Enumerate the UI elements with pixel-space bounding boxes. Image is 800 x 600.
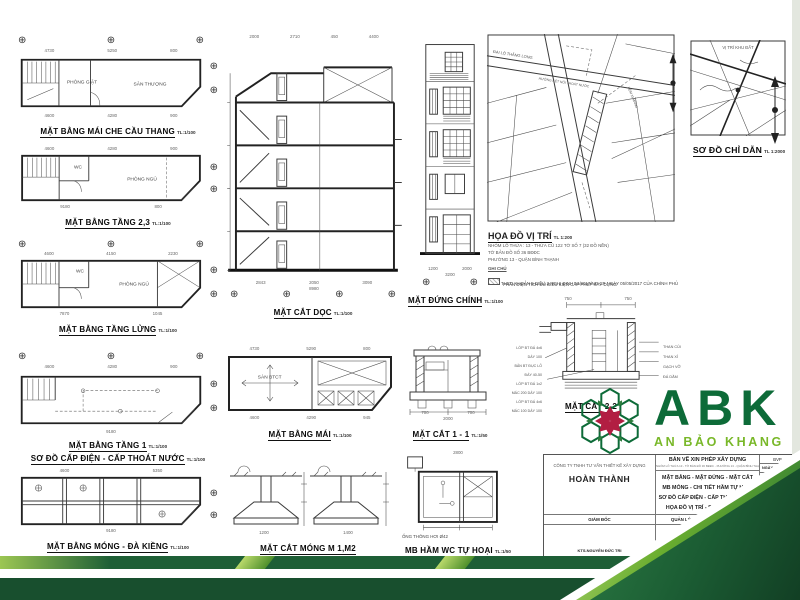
site-label: VỊ TRÍ KHU ĐẤT (722, 45, 754, 50)
panel-location-map: ĐẠI LỘ THĂNG LONG HƯỚNG KẾT NỐI THOÁT NƯ… (486, 34, 682, 290)
dim-row: 4600 4150 2230 (18, 251, 204, 256)
plan-floor23-drawing (18, 153, 204, 203)
dim: 3200 (445, 272, 455, 277)
axis-marker-icon: ⊕ (210, 265, 218, 276)
doc-title-cell: BẢN VẼ XIN PHÉP XÂY DỰNG NHÓM LÔ THỬA 13… (656, 455, 760, 471)
room-label: WC (74, 166, 82, 171)
dim: 4600 (44, 251, 54, 256)
company-name: HOÀN THÀNH (544, 474, 655, 484)
room-label: SÂN THƯỢNG (134, 83, 167, 88)
dim: 800 (363, 346, 370, 351)
dim: 9180 (106, 528, 116, 533)
drawing-title-text: MẶT BẰNG MÁI CHE CẦU THANG (40, 127, 175, 138)
drawing-scale: TL:1/100 (187, 457, 206, 462)
axis-marker-icon: ⊕ (210, 488, 218, 499)
dim: 2843 (256, 280, 266, 285)
dim: 4600 (45, 364, 55, 369)
drawing-scale: TL 1:2000 (764, 149, 785, 154)
axis-marker-icon: ⊕ (107, 240, 115, 250)
axis-marker-icon: ⊕ (230, 290, 238, 300)
foundation-sections-drawing (222, 464, 390, 532)
panel-foundation-sections: 1200 1400 MẶT CẮT MÓNG M 1,M2 (222, 462, 394, 550)
drawing-title-text: SƠ ĐỒ CHỈ DẪN (693, 145, 762, 157)
axis-marker-icon: ⊕ (388, 290, 396, 300)
dim: 4600 (60, 468, 70, 473)
section-2-2-drawing (536, 301, 662, 391)
panel-plan-floor23: ⊕ ⊕ 4600 4280 900 WC PHÒNG NGỦ 9180 800 … (18, 142, 218, 228)
legend-title: GHI CHÚ (488, 266, 507, 271)
dim: 2000 (443, 416, 453, 421)
axis-markers-side: ⊕ ⊕ (210, 54, 218, 102)
note-line: NHÓM LÔ THỬA : 13 - THỬA CŨ 122 TỜ SỐ 7 … (488, 242, 609, 249)
dim: 2710 (290, 34, 300, 39)
dim: 450 (331, 34, 338, 39)
dim: 700 (467, 410, 474, 415)
axis-marker-icon: ⊕ (210, 85, 218, 96)
abk-logo-name: AN BẢO KHANG (654, 435, 784, 449)
panel-plan-mezzanine: ⊕ ⊕ ⊕ ⊕ ⊕ 4600 4150 2230 WC PHÒNG NGỦ 78… (18, 240, 218, 332)
dim: 4280 (107, 364, 117, 369)
drawing-scale: TL:1/100 (170, 545, 189, 550)
drawing-scale: TL:1/100 (484, 299, 503, 304)
drawing-scale: TL:1/100 (177, 130, 196, 135)
dim: 900 (170, 364, 177, 369)
dim-row: 4600 4280 900 (18, 146, 204, 151)
room-label: PHÒNG NGỦ (127, 178, 157, 183)
dim-row: 9180 (18, 429, 204, 434)
axis-marker-icon: ⊕ (18, 36, 26, 46)
dim-row: 4600 4290 945 (226, 415, 394, 420)
dim-row: 2000 2710 450 4400 (234, 34, 394, 39)
note-line: TỜ BẢN ĐỒ SỐ 36 BĐĐC (488, 249, 609, 256)
material-label: LỚP BT ĐÁ 4x6 DÀY 100 (508, 344, 542, 362)
drawing-title: MẶT ĐỨNG CHÍNHTL:1/100 (408, 290, 492, 308)
drawing-scale: TL:1/100 (158, 328, 177, 333)
axis-markers-side: ⊕ ⊕ (210, 258, 218, 306)
dim: 5350 (153, 468, 163, 473)
dim: 7870 (60, 311, 70, 316)
drawing-scale: TL:1/50 (495, 549, 511, 554)
dim: 9180 (60, 204, 70, 209)
dim: 5290 (306, 346, 316, 351)
drawing-scale: TL:1/50 (471, 433, 487, 438)
material-label: THAN XỈ (663, 352, 688, 362)
dim: 9180 (106, 429, 116, 434)
abk-logo-text: ABK AN BẢO KHANG (654, 384, 784, 449)
axis-markers-side: ⊕ ⊕ (210, 372, 218, 420)
drawing-subtitle-text: SƠ ĐỒ CẤP ĐIỆN - CẤP THOÁT NƯỚC (31, 454, 185, 465)
dim: 1200 (259, 530, 269, 535)
section-2-2-right-labels: THAN CỦI THAN XỈ GẠCH VỠ ĐÁ DĂM (663, 342, 688, 382)
panel-roof-plan: 4730 5290 800 SÀN BTCT 4600 4290 945 MẶT… (226, 346, 394, 440)
panel-plan-foundation: ⊕ ⊕ 4600 5350 9180 MẶT BẰNG MÓNG - ĐÀ KI… (18, 466, 218, 556)
drawing-title: MẶT BẰNG TẦNG LỬNGTL:1/100 (18, 319, 218, 337)
north-arrow-icon (768, 72, 782, 148)
stripe-slash (235, 556, 275, 569)
location-map-drawing: ĐẠI LỘ THĂNG LONG HƯỚNG KẾT NỐI THOÁT NƯ… (486, 34, 676, 222)
panel-elevation-main: 1200 2000 3200 ⊕ ⊕ MẶT ĐỨNG CHÍNHTL:1/10… (408, 38, 492, 300)
dim-row: 9180 800 (18, 204, 204, 209)
drawing-title-text: MẶT BẰNG TẦNG LỬNG (59, 325, 156, 336)
drawing-title: MẶT CẮT MÓNG M 1,M2 (222, 538, 394, 556)
note-line: PHƯỜNG 13 - QUẬN BÌNH THẠNH (488, 256, 609, 263)
plan-floor1-drawing (18, 372, 204, 428)
drawing-scale: TL 1:200 (554, 235, 573, 240)
role-cell: GIÁM ĐỐC (544, 515, 656, 525)
drawing-title: MẶT BẰNG MÁI CHE CẦU THANGTL:1/100 (18, 121, 218, 139)
dim: 2050 (309, 280, 319, 285)
axis-marker-icon: ⊕ (107, 36, 115, 46)
abk-logo: ABK AN BẢO KHANG (574, 384, 784, 458)
material-label: THAN CỦI (663, 342, 688, 352)
drawing-title-text: MẶT ĐỨNG CHÍNH (408, 296, 482, 307)
elevation-main-drawing (420, 38, 480, 264)
axis-marker-icon: ⊕ (422, 278, 430, 288)
septic-note: ỐNG THÔNG HƠI Ø42 (402, 534, 448, 539)
axis-markers-side: ⊕ ⊕ (210, 156, 218, 200)
dim-row: 1200 1400 (222, 530, 390, 535)
material-label: BẢN BT ĐỤC LỖ ĐÁY 40-50 (508, 362, 542, 380)
drawing-title-text: MẶT CẮT 1 - 1 (413, 430, 470, 441)
dim: 1400 (343, 530, 353, 535)
dim-row: 4600 5350 (18, 468, 204, 473)
drawing-scale: TL:1/100 (334, 311, 353, 316)
panel-plan-floor1: ⊕ ⊕ ⊕ ⊕ ⊕ 4600 4280 900 9180 MẶT BẰNG TẦ (18, 352, 218, 460)
dim: 4280 (107, 113, 117, 118)
dim: 1200 (428, 266, 438, 271)
panel-plan-stair-roof: ⊕ ⊕ ⊕ ⊕ ⊕ 4730 5250 800 PHÒNG GIẶT SÂN T… (18, 36, 218, 140)
drawing-title: MẶT BẰNG MÁITL:1/100 (226, 424, 394, 442)
dim: 4280 (107, 146, 117, 151)
axis-markers-side: ⊕ ⊕ (210, 482, 218, 526)
doc-subtitle: NHÓM LÔ THỬA 13 - TỜ BẢN ĐỒ 36 BĐĐC - PH… (656, 464, 759, 468)
dim-row: 4600 4280 900 (18, 113, 204, 118)
plan-foundation-drawing (18, 475, 204, 527)
content-line: MẶT BẰNG - MẶT ĐỨNG - MẶT CẮT (656, 473, 759, 483)
drawing-subtitle: SƠ ĐỒ CẤP ĐIỆN - CẤP THOÁT NƯỚCTL:1/100 (18, 448, 218, 466)
panel-section-1-1: 700 700 2000 MẶT CẮT 1 - 1TL:1/50 (402, 344, 498, 440)
panel-section-long: 2000 2710 450 4400 (224, 34, 402, 314)
section-long-drawing (224, 42, 402, 280)
abk-logo-mark-icon (574, 384, 646, 458)
panel-septic-plan: 2800 ỐNG THÔNG HƠI Ø42 MB HẦM WC TỰ HOẠI… (402, 450, 514, 550)
section-1-1-drawing (402, 344, 494, 420)
dim: 2230 (168, 251, 178, 256)
dim-row: 4600 4280 900 (18, 364, 204, 369)
dim: 800 (154, 204, 161, 209)
roof-plan-drawing (226, 353, 394, 413)
axis-marker-icon: ⊕ (335, 290, 343, 300)
dim-row: 1200 2000 (416, 266, 484, 271)
drawing-title: MẶT BẰNG MÓNG - ĐÀ KIỀNGTL:1/100 (18, 536, 218, 554)
drawing-title-text: MẶT BẰNG MÓNG - ĐÀ KIỀNG (47, 542, 168, 553)
room-label: SÀN BTCT (258, 376, 282, 381)
septic-plan-drawing (402, 455, 510, 535)
dim: 800 (170, 48, 177, 53)
dim-row: 4730 5250 800 (18, 48, 204, 53)
dim: 2000 (462, 266, 472, 271)
axis-marker-icon: ⊕ (18, 352, 26, 362)
drawing-title-text: MẶT BẰNG TẦNG 2,3 (65, 218, 150, 229)
dim: 4730 (45, 48, 55, 53)
axis-marker-icon: ⊕ (196, 240, 204, 250)
dim-row: 9180 (18, 528, 204, 533)
axis-marker-icon: ⊕ (210, 510, 218, 521)
axis-markers: ⊕ ⊕ ⊕ (18, 36, 204, 46)
dim: 4730 (250, 346, 260, 351)
dim-row: 2000 (402, 416, 494, 421)
drawing-sheet: ⊕ ⊕ ⊕ ⊕ ⊕ 4730 5250 800 PHÒNG GIẶT SÂN T… (0, 0, 800, 600)
axis-marker-icon: ⊕ (210, 403, 218, 414)
axis-marker-icon: ⊕ (210, 379, 218, 390)
drawing-title: MẶT CẮT 1 - 1TL:1/50 (402, 424, 498, 442)
dim: 4600 (45, 113, 55, 118)
axis-markers: ⊕ ⊕ ⊕ (18, 352, 204, 362)
axis-markers: ⊕ ⊕ (422, 278, 478, 288)
drawing-scale: TL:1/100 (152, 221, 171, 226)
location-notes: NHÓM LÔ THỬA : 13 - THỬA CŨ 122 TỜ SỐ 7 … (488, 242, 609, 263)
drawing-title-text: MẶT CẮT DỌC (274, 308, 332, 319)
axis-marker-icon: ⊕ (18, 240, 26, 250)
dim: 4600 (250, 415, 260, 420)
dim-row: 700 700 (402, 410, 494, 415)
legend-text: THEO KHOẢN 5 ĐIỀU 3 NGHỊ ĐỊNH 53/2017/NĐ… (501, 281, 678, 286)
drawing-scale: TL:1/100 (333, 433, 352, 438)
axis-marker-icon: ⊕ (210, 162, 218, 173)
company-label: CÔNG TY TNHH TƯ VẤN THIẾT KẾ XÂY DỰNG (544, 463, 655, 469)
room-label: WC (76, 270, 84, 275)
street-label: ĐẠI LỘ THĂNG LONG (493, 49, 533, 60)
drawing-title: MẶT CẮT DỌCTL:1/100 (224, 302, 402, 320)
axis-markers: ⊕ ⊕ ⊕ ⊕ (230, 290, 396, 300)
dim: 900 (170, 113, 177, 118)
dim: 900 (170, 146, 177, 151)
axis-marker-icon: ⊕ (196, 352, 204, 362)
dim: 4600 (45, 146, 55, 151)
north-arrow-icon (666, 52, 680, 114)
dim: 2000 (249, 34, 259, 39)
axis-marker-icon: ⊕ (107, 352, 115, 362)
axis-marker-icon: ⊕ (470, 278, 478, 288)
drawing-title-text: MẶT CẮT MÓNG M 1,M2 (260, 544, 356, 555)
company-cell: CÔNG TY TNHH TƯ VẤN THIẾT KẾ XÂY DỰNG HO… (544, 455, 656, 515)
dim: 700 (421, 410, 428, 415)
dim: 4290 (306, 415, 316, 420)
axis-marker-icon: ⊕ (210, 61, 218, 72)
dim: 4400 (369, 34, 379, 39)
axis-marker-icon: ⊕ (210, 184, 218, 195)
stripe-gradient (0, 556, 110, 569)
dim: 5250 (107, 48, 117, 53)
axis-marker-icon: ⊕ (283, 290, 291, 300)
dim: 3090 (362, 280, 372, 285)
dim-row: 2843 2050 3090 (234, 280, 394, 285)
dim: 1045 (153, 311, 163, 316)
dim-row: 7870 1045 (18, 311, 204, 316)
dim-row: 4730 5290 800 (226, 346, 394, 351)
drawing-title: MẶT BẰNG TẦNG 2,3TL:1/100 (18, 212, 218, 230)
plan-stair-roof-drawing (18, 55, 204, 111)
axis-markers: ⊕ ⊕ ⊕ (18, 240, 204, 250)
room-label: PHÒNG GIẶT (67, 81, 97, 86)
abk-logo-abbr: ABK (654, 384, 784, 432)
axis-marker-icon: ⊕ (196, 36, 204, 46)
room-label: PHÒNG NGỦ (119, 283, 149, 288)
drawing-title-text: MẶT BẰNG MÁI (268, 430, 330, 441)
plan-mezzanine-drawing (18, 258, 204, 310)
doc-title: BẢN VẼ XIN PHÉP XÂY DỰNG (656, 457, 759, 463)
material-label: GẠCH VỠ (663, 362, 688, 372)
stripe-slash (435, 556, 475, 569)
hatch-swatch-icon (488, 278, 500, 285)
axis-marker-icon: ⊕ (210, 289, 218, 300)
dim: 945 (363, 415, 370, 420)
dim: 4150 (106, 251, 116, 256)
